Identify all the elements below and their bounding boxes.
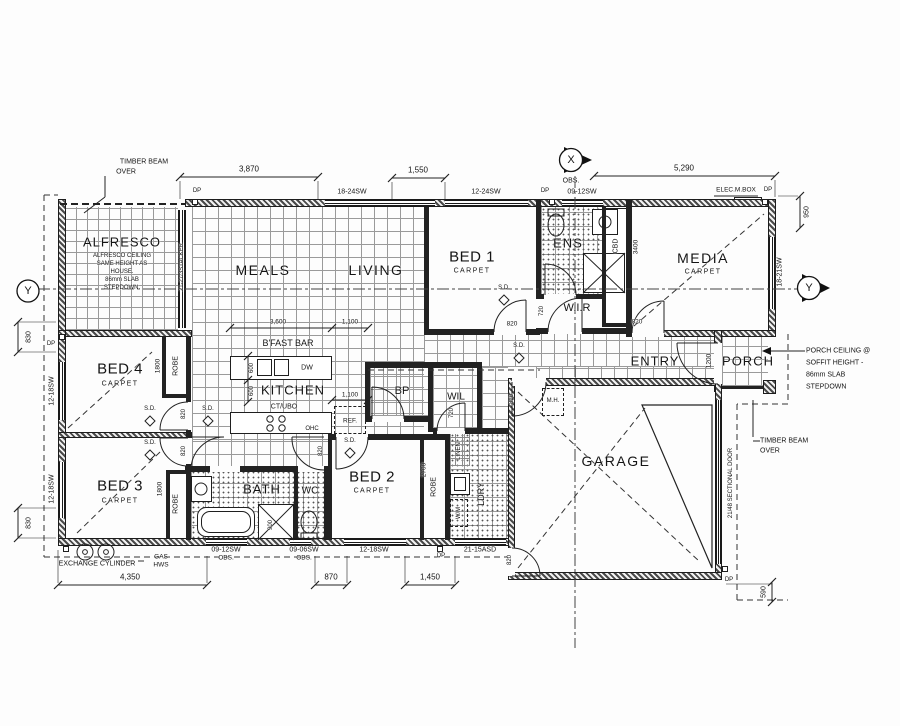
hall-ldry-tiles xyxy=(482,367,508,433)
room-label-entry: ENTRY xyxy=(631,354,680,369)
dim-720: 720 xyxy=(449,408,455,418)
washing-machine-label: W/M xyxy=(456,507,462,519)
door-opening xyxy=(548,328,582,334)
window-12-18SW xyxy=(58,362,66,420)
dim-1100: 1,100 xyxy=(342,392,358,399)
dim-1800: 1800 xyxy=(157,482,164,496)
wall xyxy=(602,323,632,327)
window-label: 09-06SW xyxy=(289,547,318,554)
wall xyxy=(626,199,632,337)
room-label-wil: WIL xyxy=(447,392,465,403)
stacker-door-label: 21-27/3STACKER xyxy=(179,243,185,291)
porch-note: STEPDOWN xyxy=(806,384,846,391)
window-09-12SW xyxy=(562,199,603,207)
door-opening xyxy=(372,416,404,422)
bath-shower xyxy=(258,504,294,540)
linen-label: LINEN xyxy=(456,442,462,460)
garage-sectional-door xyxy=(715,400,722,564)
gas-hws-label: HWS xyxy=(153,562,168,569)
dim-820: 820 xyxy=(632,319,643,326)
exchange-cylinder-label: EXCHANGE CYLINDER xyxy=(59,561,136,568)
window-09-06SW-obs xyxy=(290,538,311,546)
sink-bowl xyxy=(274,359,289,376)
porch-note: 86mm SLAB xyxy=(806,372,845,379)
window-12-24SW xyxy=(445,199,528,207)
dim-600: 600 xyxy=(249,363,255,373)
timber-beam-note: TIMBER BEAM xyxy=(120,159,168,166)
sd-label: S.D. xyxy=(344,438,356,444)
robe-label: ROBE xyxy=(173,494,180,514)
robe-label: ROBE xyxy=(431,477,438,497)
window-12-18SW xyxy=(344,538,406,546)
wall xyxy=(602,207,606,327)
section-marker-x: X xyxy=(567,154,574,166)
door-opening xyxy=(544,294,576,299)
wall xyxy=(58,199,66,337)
window-label: 18-21SW xyxy=(777,257,784,286)
downpipe xyxy=(437,546,443,552)
room-label-meals: MEALS xyxy=(236,262,291,278)
wall xyxy=(166,470,186,474)
dim-1800: 1800 xyxy=(155,359,162,373)
floor-finish-label: CARPET xyxy=(102,381,139,388)
window-label: 09-12SW xyxy=(567,189,596,196)
hall-bath-tiles xyxy=(192,438,332,468)
window-label: 09-12SW xyxy=(211,547,240,554)
downpipe xyxy=(762,199,768,205)
dim-3600: 3,600 xyxy=(270,319,286,326)
downpipe xyxy=(549,199,555,205)
dishwasher-label: DW xyxy=(301,365,313,372)
section-marker-y: Y xyxy=(805,282,812,294)
door-opening xyxy=(632,330,664,337)
obs-label: OBS. xyxy=(218,555,234,562)
cbd-label: CBD xyxy=(613,239,620,254)
room-label-wc: WC xyxy=(302,486,319,497)
window-label: 12-18SW xyxy=(359,547,388,554)
sd-label: S.D. xyxy=(144,406,156,412)
sd-label: S.D. xyxy=(144,440,156,446)
dim-1550: 1,550 xyxy=(408,166,428,175)
room-label-bp: BP xyxy=(395,385,410,397)
sd-label: S.D. xyxy=(513,343,525,349)
dim-870: 870 xyxy=(324,573,337,582)
dim-830: 830 xyxy=(26,517,33,529)
obs-label: OBS. xyxy=(563,178,580,185)
wall xyxy=(477,362,482,433)
alfresco-note: 86mm SLAB xyxy=(105,277,139,283)
porch-pier xyxy=(763,380,776,394)
floor-finish-label: CARPET xyxy=(354,488,391,495)
wall xyxy=(166,470,170,538)
floor-finish-label: CARPET xyxy=(102,498,139,505)
sd-label: S.D. xyxy=(498,285,510,291)
timber-beam-note: OVER xyxy=(760,448,780,455)
dim-1450: 1,450 xyxy=(420,573,440,582)
wall xyxy=(162,337,166,398)
room-label-bed4: BED 4 xyxy=(97,361,143,378)
porch-note: SOFFIT HEIGHT - xyxy=(806,360,863,367)
dp-label: DP xyxy=(47,341,55,347)
wall xyxy=(58,330,192,337)
room-label-wir: W.I.R xyxy=(564,302,591,314)
dim-2700: 2700 xyxy=(421,463,428,477)
window-18-24SW xyxy=(325,199,435,207)
dim-720: 720 xyxy=(539,306,545,316)
window-label: 12-18SW xyxy=(49,474,56,503)
room-label-bed2: BED 2 xyxy=(349,469,395,486)
manhole-label: M.H. xyxy=(547,398,560,404)
dim-3870: 3,870 xyxy=(239,165,259,174)
obs-label: OBS. xyxy=(296,555,312,562)
downpipe xyxy=(722,566,728,572)
wall xyxy=(428,362,433,432)
room-label-garage: GARAGE xyxy=(582,453,651,469)
downpipe xyxy=(63,546,69,552)
sectional-door-label: 21/48 SECTIONAL DOOR xyxy=(728,448,734,518)
room-label-media: MEDIA xyxy=(677,250,729,266)
door-opening xyxy=(512,378,546,386)
door-21-15ASD xyxy=(455,538,506,546)
dim-820: 820 xyxy=(181,446,187,456)
door-label: 21-15ASD xyxy=(464,547,496,554)
wall xyxy=(294,470,298,540)
dim-3400: 3400 xyxy=(633,240,640,254)
porch-note: PORCH CEILING @ xyxy=(806,348,870,355)
wall xyxy=(508,572,722,580)
gas-hws-label: GAS xyxy=(154,554,168,561)
dp-label: DP xyxy=(541,188,549,194)
ldry-tub-bowl xyxy=(454,477,466,491)
dim-950: 950 xyxy=(804,206,811,218)
wall xyxy=(58,432,192,438)
dim-4350: 4,350 xyxy=(120,573,140,582)
room-label-ens: ENS xyxy=(553,236,583,251)
door-opening xyxy=(714,343,722,384)
wall xyxy=(162,394,186,398)
wall xyxy=(536,199,541,299)
section-marker-y: Y xyxy=(24,285,31,297)
room-label-alfresco: ALFRESCO xyxy=(83,235,161,250)
room-label-living: LIVING xyxy=(349,262,404,278)
door-opening xyxy=(494,329,526,335)
room-label-bed3: BED 3 xyxy=(97,478,143,495)
wall xyxy=(365,362,370,422)
downpipe xyxy=(192,199,198,205)
dp-label: DP xyxy=(764,187,772,193)
alfresco-note: ALFRESCO CEILING xyxy=(93,253,151,259)
dim-820: 820 xyxy=(507,321,518,328)
floor-finish-label: CARPET xyxy=(685,269,722,276)
alfresco-note: HOUSE. xyxy=(110,269,133,275)
ct-ubo-label: CT/UBO xyxy=(271,404,297,411)
dp-label: DP xyxy=(193,188,201,194)
window-18-21SW xyxy=(768,237,776,309)
window-label: 12-24SW xyxy=(471,189,500,196)
dp-label: DP xyxy=(437,553,445,559)
ohc-label: OHC xyxy=(305,426,318,432)
bath-vanity xyxy=(191,476,212,502)
wall xyxy=(365,362,482,368)
robe-label: ROBE xyxy=(173,356,180,376)
dim-830: 830 xyxy=(26,331,33,343)
dim-820: 820 xyxy=(507,555,513,565)
window-09-12SW-obs xyxy=(206,538,247,546)
dim-600: 600 xyxy=(249,386,255,396)
sink-bowl xyxy=(257,359,272,376)
wall xyxy=(424,199,429,335)
dim-5290: 5,290 xyxy=(674,164,694,173)
wall xyxy=(420,440,424,540)
timber-beam-note: OVER xyxy=(116,169,136,176)
dim-590: 590 xyxy=(761,586,768,598)
alfresco-note: SAME HEIGHT AS xyxy=(97,261,148,267)
elec-mbox-label: ELEC.M.BOX xyxy=(716,187,756,194)
downpipe xyxy=(59,334,65,340)
room-label-kitchen: KITCHEN xyxy=(261,383,325,398)
wall xyxy=(328,434,332,540)
dim-820: 820 xyxy=(318,446,324,456)
wall xyxy=(445,434,450,540)
floor-finish-label: CARPET xyxy=(454,268,491,275)
dim-900: 900 xyxy=(268,520,274,530)
dim-1100: 1,100 xyxy=(342,319,358,326)
timber-beam-note: TIMBER BEAM xyxy=(760,438,808,445)
door-opening xyxy=(210,466,240,472)
alfresco-note: STEPDOWN. xyxy=(104,285,140,291)
window-label: 18-24SW xyxy=(337,189,366,196)
bath-tub-inner xyxy=(201,511,251,533)
door-opening xyxy=(437,428,465,434)
dim-820: 820 xyxy=(181,409,187,419)
window-label: 12-18SW xyxy=(49,376,56,405)
room-label-porch: PORCH xyxy=(722,354,774,369)
window-12-18SW xyxy=(58,462,66,518)
room-label-ldry: LDRY xyxy=(476,482,486,506)
dim-1200: 1200 xyxy=(706,354,713,368)
room-label-bed1: BED 1 xyxy=(449,249,495,266)
sd-label: S.D. xyxy=(202,406,214,412)
dim-820: 820 xyxy=(509,394,515,404)
dp-label: DP xyxy=(725,577,733,583)
bfast-bar-label: B'FAST BAR xyxy=(262,338,313,348)
door-opening xyxy=(298,466,324,472)
room-label-bath: BATH xyxy=(243,482,281,497)
floor-plan: TIMBER BEAM OVER 3,870 1,550 5,290 X OBS… xyxy=(0,0,900,726)
fridge-label: REF. xyxy=(343,418,357,425)
